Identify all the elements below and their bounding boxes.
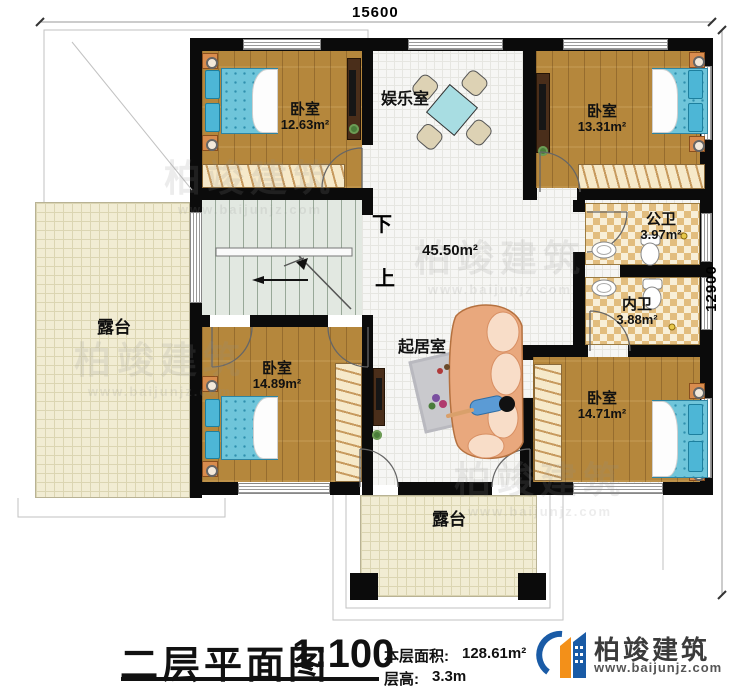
room-area: 13.31m² — [552, 120, 652, 135]
pillow — [205, 70, 220, 99]
room-name: 卧室 — [255, 101, 355, 118]
wall — [523, 188, 537, 200]
wall — [573, 252, 585, 345]
stairs-down-label: 下 — [372, 208, 392, 237]
logo-website: www.baijunjz.com — [594, 660, 722, 675]
room-label-terrace-left: 露台 — [79, 318, 149, 338]
pillow — [205, 103, 220, 132]
nightstand — [689, 52, 705, 68]
wall — [577, 188, 713, 200]
room-area: 14.71m² — [552, 407, 652, 422]
wall — [523, 38, 536, 200]
pillow — [688, 404, 703, 435]
room-name: 公卫 — [626, 211, 696, 228]
stairwell-floor — [202, 200, 362, 315]
wall — [520, 345, 533, 360]
room-label-bedroom-bottomleft: 卧室 14.89m² — [227, 360, 327, 392]
tv — [539, 84, 546, 130]
room-label-living: 起居室 — [386, 339, 458, 357]
pillow — [205, 431, 220, 459]
room-name: 卧室 — [227, 360, 327, 377]
wall — [190, 188, 373, 200]
stairs-up-label: 上 — [375, 262, 395, 291]
room-label-entertainment: 娱乐室 — [370, 91, 440, 109]
hall-area-label: 45.50m² — [405, 242, 495, 259]
room-label-bedroom-topleft: 卧室 12.63m² — [255, 101, 355, 133]
floor-area-label: 本层面积: — [384, 645, 449, 666]
wardrobe — [335, 363, 362, 482]
terrace-left-floor — [35, 202, 190, 498]
dimension-top: 15600 — [352, 4, 399, 21]
wall — [530, 482, 573, 495]
room-area: 3.97m² — [626, 228, 696, 243]
room-area: 3.88m² — [602, 313, 672, 328]
window — [243, 39, 321, 50]
terrace-column — [518, 573, 546, 600]
floor-height-value: 3.3m — [432, 668, 466, 685]
wall — [398, 482, 492, 495]
wall — [520, 398, 533, 495]
nightstand — [202, 461, 218, 477]
window — [408, 39, 503, 50]
pillow — [688, 103, 703, 132]
nightstand — [689, 383, 705, 399]
terrace-column — [350, 573, 378, 600]
wardrobe — [578, 164, 705, 189]
wall — [573, 200, 585, 212]
wardrobe — [202, 164, 345, 188]
bed-blanket — [253, 397, 278, 459]
wall — [190, 482, 238, 495]
nightstand — [202, 376, 218, 392]
wall — [628, 345, 713, 357]
room-label-private-bath: 内卫 3.88m² — [602, 296, 672, 328]
pillow — [205, 399, 220, 427]
floor-plan-canvas: 柏竣建筑 www.baijunjz.com 柏竣建筑 www.baijunjz.… — [0, 0, 750, 694]
tv — [376, 378, 382, 410]
window — [190, 212, 202, 303]
plant — [538, 146, 548, 156]
floor-height-label: 层高: — [384, 668, 419, 689]
pillow — [688, 441, 703, 472]
room-label-bedroom-topright: 卧室 13.31m² — [552, 103, 652, 135]
nightstand — [689, 136, 705, 152]
wall — [663, 482, 713, 495]
window — [701, 213, 712, 262]
logo-icon — [539, 632, 586, 678]
window — [238, 483, 330, 494]
wardrobe — [534, 364, 562, 481]
bed-blanket — [652, 69, 678, 133]
wall — [330, 482, 360, 495]
wall — [362, 315, 373, 495]
room-name: 卧室 — [552, 103, 652, 120]
window — [563, 39, 668, 50]
floor-area-value: 128.61m² — [462, 645, 526, 662]
window — [573, 483, 663, 494]
plan-scale: 1:100 — [292, 632, 394, 677]
dimension-right: 12900 — [703, 265, 720, 312]
room-name: 卧室 — [552, 390, 652, 407]
bed-blanket — [652, 401, 678, 477]
nightstand — [202, 135, 218, 151]
plant — [372, 430, 382, 440]
wall — [190, 315, 210, 327]
room-label-terrace-bottom: 露台 — [414, 510, 484, 530]
pillow — [688, 70, 703, 99]
room-label-public-bath: 公卫 3.97m² — [626, 211, 696, 243]
room-name: 内卫 — [602, 296, 672, 313]
wall — [250, 315, 328, 327]
nightstand — [202, 53, 218, 69]
room-label-bedroom-bottomright: 卧室 14.71m² — [552, 390, 652, 422]
room-area: 12.63m² — [255, 118, 355, 133]
title-underline — [121, 677, 379, 681]
wall — [620, 265, 713, 277]
room-area: 14.89m² — [227, 377, 327, 392]
